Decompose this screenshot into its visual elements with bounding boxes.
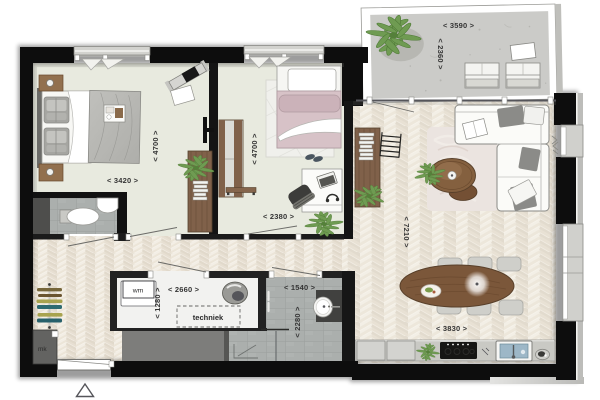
svg-text:< 2280 >: < 2280 > (293, 306, 302, 338)
svg-text:< 2380 >: < 2380 > (263, 212, 295, 221)
svg-text:< 4700 >: < 4700 > (151, 130, 160, 162)
svg-text:techniek: techniek (193, 313, 224, 322)
svg-text:mk: mk (38, 346, 47, 353)
svg-text:< 7210 >: < 7210 > (402, 216, 411, 248)
svg-text:< 3590 >: < 3590 > (443, 21, 475, 30)
svg-text:< 2660 >: < 2660 > (168, 285, 200, 294)
svg-text:< 4700 >: < 4700 > (250, 133, 259, 165)
svg-text:< 1540 >: < 1540 > (284, 283, 316, 292)
svg-text:< 2360 >: < 2360 > (436, 38, 445, 70)
svg-text:< 3420 >: < 3420 > (107, 176, 139, 185)
svg-text:wm: wm (132, 288, 144, 295)
svg-text:< 3830 >: < 3830 > (436, 324, 468, 333)
svg-text:< 1280 >: < 1280 > (153, 287, 162, 319)
